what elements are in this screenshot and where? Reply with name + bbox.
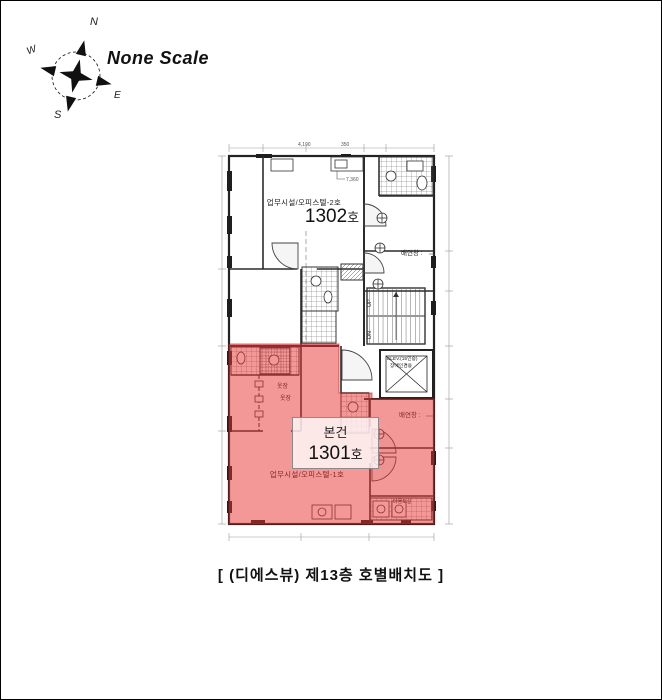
unit-1302-number-suffix: 호 — [347, 210, 359, 225]
compass-west-label: W — [26, 45, 38, 58]
scale-note: None Scale — [107, 48, 209, 69]
vent-label-top: 배연창 : — [401, 251, 423, 258]
compass-south-label: S — [54, 110, 61, 121]
unit-1301-usage: 업무시설/오피스텔-1호 — [270, 471, 344, 479]
unit-1302-number: 1302호 — [305, 207, 359, 226]
compass-east-label: E — [114, 91, 121, 101]
stairs-down-label: DN — [368, 331, 374, 339]
dimension-top-a: 4,190 — [298, 143, 311, 148]
plan-labels: N W E S None Scale 4,190 350 7,360 업무시설/… — [1, 1, 662, 700]
drawing-caption: [ (디에스뷰) 제13층 호별배치도 ] — [1, 564, 661, 585]
subject-label: 본건 — [293, 422, 378, 441]
elevator-name-label: ELEV.(15인승) — [387, 358, 418, 363]
subject-info-box: 본건 1301호 — [292, 417, 379, 469]
unit-1301-number-value: 1301 — [308, 443, 350, 464]
unit-1301-number: 1301호 — [293, 443, 378, 465]
dimension-inner: 7,360 — [346, 178, 359, 183]
elevator-sub-label: 장애인겸용 — [390, 365, 412, 370]
unit-1301-number-suffix: 호 — [351, 447, 363, 462]
dimension-top-b: 350 — [341, 143, 349, 148]
compass-north-label: N — [90, 17, 98, 28]
unit-1302-number-value: 1302 — [305, 206, 347, 227]
floorplan-page: N W E S None Scale 4,190 350 7,360 업무시설/… — [0, 0, 662, 700]
closet-label-a: 옷장 — [277, 384, 288, 390]
vent-label-bottom: 배연창 : — [399, 413, 421, 420]
closet-label-b: 옷장 — [280, 396, 291, 402]
utility-room-label: 다용도실 — [393, 500, 411, 505]
stairs-up-label: UP — [368, 299, 374, 307]
